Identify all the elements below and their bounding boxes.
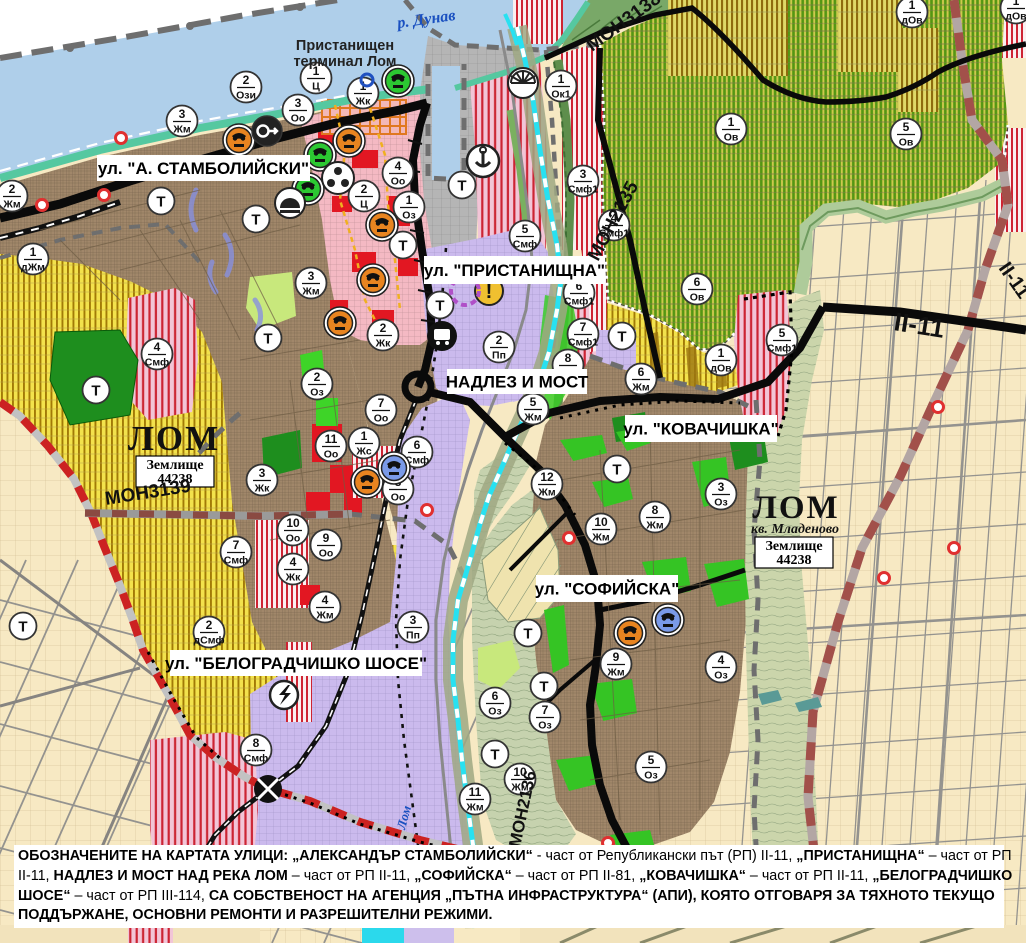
svg-text:Ов: Ов (724, 132, 739, 144)
svg-text:Т: Т (398, 238, 407, 255)
svg-text:Т: Т (156, 194, 165, 211)
svg-text:9: 9 (613, 650, 620, 664)
svg-text:5: 5 (522, 222, 529, 236)
svg-text:1: 1 (558, 72, 565, 86)
svg-text:Т: Т (457, 178, 466, 195)
svg-text:Смф: Смф (244, 753, 268, 765)
svg-text:Оз: Оз (644, 770, 657, 782)
svg-text:1: 1 (30, 245, 37, 259)
svg-text:!: ! (486, 281, 493, 303)
svg-text:2: 2 (314, 370, 321, 384)
svg-text:8: 8 (253, 736, 260, 750)
svg-text:1: 1 (1013, 0, 1020, 8)
svg-text:дОв: дОв (901, 15, 923, 27)
svg-text:4: 4 (395, 159, 402, 173)
svg-text:Оо: Оо (391, 492, 406, 504)
svg-text:Ц: Ц (312, 81, 320, 93)
svg-text:Жк: Жк (375, 338, 391, 350)
svg-text:2: 2 (206, 618, 213, 632)
svg-text:6: 6 (638, 365, 645, 379)
svg-text:Т: Т (18, 619, 27, 636)
svg-text:1: 1 (728, 115, 735, 129)
svg-text:Ов: Ов (690, 292, 705, 304)
svg-text:Ози: Ози (236, 90, 256, 102)
svg-text:Жм: Жм (172, 124, 190, 136)
svg-text:Жм: Жм (537, 487, 555, 499)
svg-text:Жм: Жм (645, 520, 663, 532)
svg-text:Оз: Оз (538, 720, 551, 732)
svg-text:2: 2 (9, 182, 16, 196)
svg-text:Жм: Жм (2, 199, 20, 211)
svg-text:5: 5 (779, 326, 786, 340)
svg-text:11: 11 (469, 785, 482, 799)
svg-text:5: 5 (648, 753, 655, 767)
svg-text:1: 1 (406, 193, 413, 207)
svg-text:Смф1: Смф1 (568, 337, 598, 349)
svg-text:Жм: Жм (315, 610, 333, 622)
svg-text:Оз: Оз (714, 497, 727, 509)
svg-text:Т: Т (91, 383, 100, 400)
svg-text:ул. "ПРИСТАНИЩНА": ул. "ПРИСТАНИЩНА" (424, 261, 605, 280)
svg-text:ЛОМ: ЛОМ (752, 490, 839, 526)
svg-text:12: 12 (540, 470, 554, 484)
svg-text:Оо: Оо (291, 113, 306, 125)
svg-text:Т: Т (523, 626, 532, 643)
svg-text:Жм: Жм (465, 802, 483, 814)
svg-text:2: 2 (361, 182, 368, 196)
svg-text:5: 5 (530, 395, 537, 409)
svg-text:11: 11 (325, 432, 338, 446)
svg-text:Смф: Смф (224, 555, 248, 567)
svg-text:7: 7 (542, 703, 549, 717)
svg-text:10: 10 (286, 516, 300, 530)
svg-text:Жм: Жм (523, 412, 541, 424)
svg-text:Землище: Землище (765, 539, 822, 554)
svg-text:3: 3 (308, 269, 315, 283)
svg-text:Пп: Пп (492, 350, 506, 362)
svg-text:Оо: Оо (391, 176, 406, 188)
svg-text:Т: Т (490, 747, 499, 764)
svg-text:Т: Т (435, 298, 444, 315)
svg-text:Т: Т (539, 679, 548, 696)
svg-text:Оо: Оо (324, 449, 339, 461)
svg-text:2: 2 (243, 73, 250, 87)
svg-text:2: 2 (380, 321, 387, 335)
svg-text:дОв: дОв (710, 363, 732, 375)
svg-text:дОв: дОв (1005, 11, 1026, 23)
svg-text:Оз: Оз (310, 387, 323, 399)
svg-text:Смф1: Смф1 (767, 343, 797, 355)
svg-text:ул. "СОФИЙСКА": ул. "СОФИЙСКА" (535, 580, 680, 599)
svg-text:Жк: Жк (285, 572, 301, 584)
svg-text:3: 3 (179, 107, 186, 121)
svg-text:Жм: Жм (301, 286, 319, 298)
svg-text:3: 3 (259, 466, 266, 480)
svg-text:Ок1: Ок1 (551, 89, 570, 101)
svg-text:Ов: Ов (899, 137, 914, 149)
svg-text:Оз: Оз (714, 670, 727, 682)
svg-text:4: 4 (290, 555, 297, 569)
svg-text:Т: Т (251, 212, 260, 229)
svg-text:10: 10 (594, 515, 608, 529)
svg-text:5: 5 (903, 120, 910, 134)
svg-text:ул. "А. СТАМБОЛИЙСКИ": ул. "А. СТАМБОЛИЙСКИ" (98, 159, 309, 178)
svg-text:Жм: Жм (631, 382, 649, 394)
svg-text:7: 7 (233, 538, 240, 552)
svg-text:8: 8 (652, 503, 659, 517)
svg-text:ЛОМ: ЛОМ (128, 419, 220, 458)
svg-text:Пп: Пп (406, 630, 420, 642)
svg-text:Жс: Жс (355, 446, 371, 458)
svg-text:Оо: Оо (319, 548, 334, 560)
svg-text:3: 3 (718, 480, 725, 494)
svg-text:3: 3 (410, 613, 417, 627)
svg-text:дСмф: дСмф (193, 635, 224, 647)
svg-text:8: 8 (565, 351, 572, 365)
svg-text:кв. Младеново: кв. Младеново (751, 522, 839, 537)
svg-text:Ц: Ц (360, 199, 368, 211)
svg-text:Жк: Жк (254, 483, 270, 495)
svg-text:Жк: Жк (355, 96, 371, 108)
svg-text:1: 1 (718, 346, 725, 360)
svg-text:44238: 44238 (777, 553, 812, 568)
svg-text:4: 4 (322, 593, 329, 607)
svg-text:Оз: Оз (488, 706, 501, 718)
svg-text:1: 1 (361, 429, 368, 443)
svg-text:3: 3 (580, 167, 587, 181)
svg-text:дЖм: дЖм (21, 262, 45, 274)
svg-text:Оо: Оо (286, 533, 301, 545)
svg-text:6: 6 (414, 438, 421, 452)
svg-text:Смф: Смф (145, 357, 169, 369)
svg-text:2: 2 (496, 333, 503, 347)
svg-text:6: 6 (694, 275, 701, 289)
svg-text:Оо: Оо (374, 413, 389, 425)
svg-text:Смф1: Смф1 (564, 296, 594, 308)
svg-text:Землище: Землище (146, 458, 203, 473)
svg-text:Т: Т (612, 462, 621, 479)
svg-text:7: 7 (580, 320, 587, 334)
svg-text:ул. "БЕЛОГРАДЧИШКО ШОСЕ": ул. "БЕЛОГРАДЧИШКО ШОСЕ" (165, 654, 427, 673)
svg-text:3: 3 (295, 96, 302, 110)
svg-text:7: 7 (378, 396, 385, 410)
svg-text:9: 9 (323, 531, 330, 545)
svg-text:Т: Т (263, 331, 272, 348)
svg-text:Оз: Оз (402, 210, 415, 222)
svg-text:Т: Т (617, 329, 626, 346)
svg-text:Жм: Жм (591, 532, 609, 544)
svg-text:4: 4 (718, 653, 725, 667)
svg-text:Смф1: Смф1 (568, 184, 598, 196)
svg-text:Смф: Смф (513, 239, 537, 251)
svg-text:ул. "КОВАЧИШКА": ул. "КОВАЧИШКА" (623, 420, 779, 439)
svg-text:Жм: Жм (606, 667, 624, 679)
svg-text:НАДЛЕЗ И МОСТ: НАДЛЕЗ И МОСТ (446, 373, 589, 392)
svg-text:1: 1 (909, 0, 916, 12)
svg-text:6: 6 (492, 689, 499, 703)
svg-text:Пристанищен: Пристанищен (296, 38, 394, 54)
svg-text:терминал Лом: терминал Лом (293, 54, 396, 70)
svg-text:4: 4 (154, 340, 161, 354)
